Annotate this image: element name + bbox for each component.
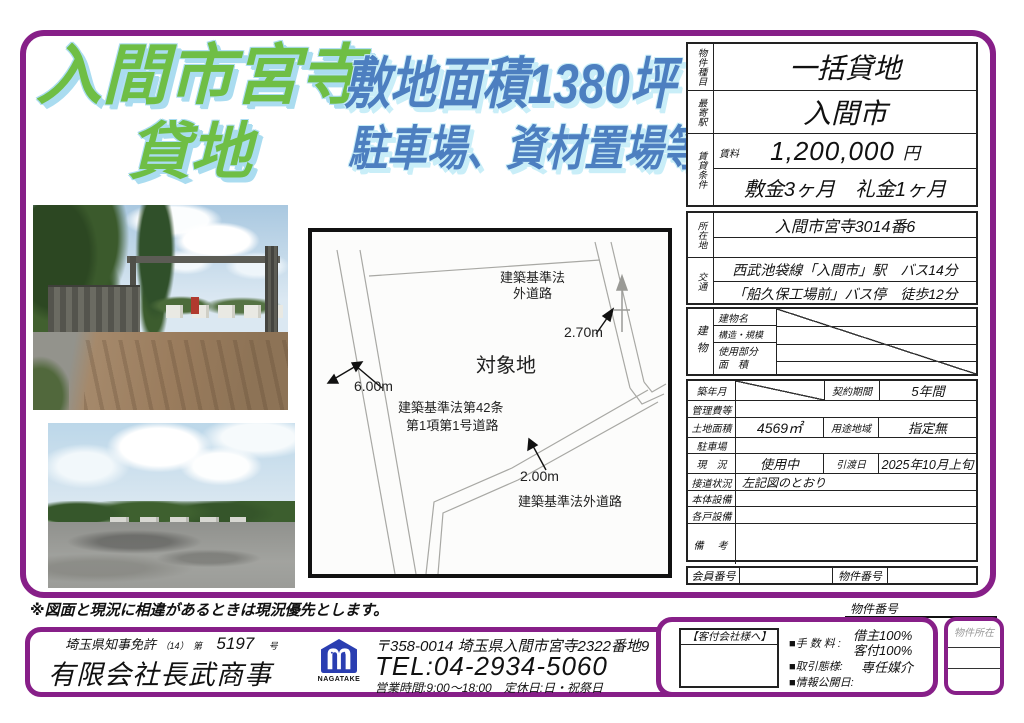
table-box-numbers: 会員番号 物件番号 [686, 566, 978, 585]
mgmt-label: 管理費等 [688, 401, 736, 417]
rent-value: 1,200,000 [770, 136, 895, 167]
company-hours: 営業時間:9:00～18:00 定休日:日・祝祭日 [375, 679, 603, 696]
map-label-law-road-top: 建築基準法 外道路 [500, 270, 565, 303]
property-location-label: 物件所在 [948, 624, 1000, 639]
title-type: 貸地 [128, 122, 252, 184]
built-label: 築年月 [688, 381, 736, 400]
status-value: 使用中 [736, 454, 824, 473]
status-label: 現 況 [688, 454, 736, 473]
company-tel: TEL:04-2934-5060 [375, 651, 608, 682]
license-go: 号 [269, 641, 278, 651]
table-box-details: 築年月 契約期間 5年間 管理費等 土地面積 4569㎡ 用途地域 指定無 駐車… [686, 379, 978, 562]
company-name: 有限会社長武商事 [48, 653, 272, 692]
property-type-label: 物件種目 [688, 44, 714, 90]
photo1-tire-tracks [84, 340, 288, 410]
rental-conditions-label: 賃貸条件 [688, 134, 714, 205]
title-location: 入間市宮寺 [36, 42, 366, 108]
notes-label: 備 考 [688, 524, 736, 564]
rent-unit: 円 [903, 139, 920, 164]
parking-value [736, 438, 976, 453]
license-line: 埼玉県知事免許 （14） 第 5197 号 [65, 634, 278, 654]
member-no-value [740, 568, 833, 583]
license-no: 5197 [206, 634, 264, 653]
unit-equip-value [736, 507, 976, 523]
to-client-company-label: 【客付会社様へ】 [681, 630, 777, 645]
nagatake-logo-icon [320, 638, 358, 674]
photo1-gate-beam [127, 256, 280, 263]
table-box-address-access: 所在地 入間市宮寺3014番6 交通 西武池袋線「入間市」駅 バス14分 「船久… [686, 211, 978, 305]
access-label: 交通 [688, 258, 714, 305]
license-name: 埼玉県知事免許 [65, 637, 156, 652]
used-area-label: 面 積 [718, 359, 748, 372]
main-equip-label: 本体設備 [688, 491, 736, 506]
license-paren: （14） [160, 641, 188, 651]
main-equip-value [736, 491, 976, 506]
built-crossed-out [736, 381, 825, 400]
land-area-value: 4569㎡ [736, 418, 824, 437]
deposit-value: 敷金3ヶ月 礼金1ヶ月 [714, 169, 976, 205]
property-type-value: 一括貸地 [714, 44, 976, 90]
table-box-building: 建物 建物名 構造・規模 使用部分 面 積 [686, 307, 978, 376]
road-label: 接道状況 [688, 474, 736, 490]
logo-text: NAGATAKE [316, 676, 362, 683]
access-value-2: 「船久保工場前」バス停 徒歩12分 [714, 282, 976, 305]
footer-property-no-label: 物件番号 [850, 600, 898, 617]
zoning-label: 用途地域 [824, 418, 879, 437]
notes-value [736, 524, 976, 564]
title-usage: 駐車場、資材置場等 [348, 126, 702, 174]
address-label: 所在地 [688, 213, 714, 257]
map-label-width-left: 6.00m [354, 378, 393, 396]
station-label: 最寄駅 [688, 91, 714, 133]
address-value: 入間市宮寺3014番6 [714, 213, 976, 238]
property-location-box: 物件所在 [944, 617, 1004, 695]
property-no-value [888, 568, 976, 583]
building-label: 建物 [688, 309, 714, 374]
title-area: 敷地面積1380坪 [344, 56, 676, 112]
mgmt-value [736, 401, 976, 417]
to-client-company-box: 【客付会社様へ】 [679, 628, 779, 688]
building-name-label: 建物名 [714, 309, 776, 326]
handover-label: 引渡日 [824, 454, 879, 473]
flyer-page: 入間市宮寺 貸地 敷地面積1380坪 駐車場、資材置場等 [0, 0, 1024, 723]
access-value-1: 西武池袋線「入間市」駅 バス14分 [714, 258, 976, 282]
used-part-label: 使用部分 [718, 346, 758, 359]
map-label-road42-line1: 建築基準法第42条 [398, 400, 503, 416]
zoning-value: 指定無 [879, 418, 976, 437]
building-crossed-out [777, 309, 976, 374]
map-label-road42-line2: 第1項第1号道路 [406, 418, 498, 434]
release-date-label: ■情報公開日: [789, 674, 854, 690]
address-value-2 [714, 238, 976, 257]
disclaimer-note: ※図面と現況に相違があるときは現況優先とします。 [30, 599, 388, 620]
map-label-width-right: 2.70m [564, 324, 603, 342]
station-value: 入間市 [714, 91, 976, 133]
member-no-label: 会員番号 [688, 568, 740, 583]
property-location-line-1 [948, 647, 1000, 648]
photo2-ground-patches [48, 522, 295, 588]
contract-label: 契約期間 [825, 381, 880, 400]
photo-open-lot [48, 423, 295, 588]
photo1-grass-corner [33, 340, 69, 410]
fee-box: 【客付会社様へ】 ■手 数 料 : 借主100% 客付100% ■取引態様: 専… [656, 617, 938, 697]
license-dai: 第 [193, 641, 202, 651]
structure-label: 構造・規模 [714, 326, 776, 343]
property-no-label: 物件番号 [833, 568, 888, 583]
unit-equip-label: 各戸設備 [688, 507, 736, 523]
contract-value: 5年間 [880, 381, 976, 400]
map-label-target-site: 対象地 [476, 354, 536, 379]
road-value: 左記図のとおり [736, 474, 976, 490]
table-box-summary: 物件種目 一括貸地 最寄駅 入間市 賃貸条件 賃料 1,200,000 円 敷金… [686, 42, 978, 207]
map-label-width-bottom: 2.00m [520, 468, 559, 486]
rent-label: 賃料 [719, 145, 739, 160]
transaction-value: 専任媒介 [861, 657, 913, 676]
fee-label: ■手 数 料 : [789, 635, 841, 651]
company-logo: NAGATAKE [316, 638, 362, 683]
land-area-label: 土地面積 [688, 418, 736, 437]
photo1-crane [191, 297, 199, 313]
handover-value: 2025年10月上旬 [879, 454, 976, 473]
transaction-label: ■取引態様: [789, 658, 843, 674]
property-location-line-2 [948, 668, 1000, 669]
parking-label: 駐車場 [688, 438, 736, 453]
photo-entrance-gate [33, 205, 288, 410]
map-label-law-road-bottom: 建築基準法外道路 [518, 494, 622, 510]
site-map: 建築基準法 外道路 2.70m 対象地 6.00m 建築基準法第42条 第1項第… [308, 228, 672, 578]
